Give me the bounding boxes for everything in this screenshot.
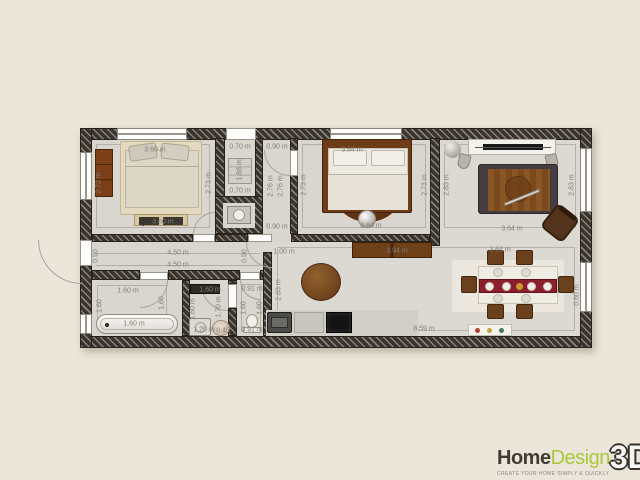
kitchen-module[interactable] xyxy=(294,312,324,333)
hallway-dimline2 xyxy=(96,265,260,266)
runner-plate-4 xyxy=(543,282,552,291)
bench-cushion-2 xyxy=(163,217,183,225)
lowboard-item-1 xyxy=(475,328,480,333)
wall-bottom xyxy=(80,336,592,348)
dining-plate-bottom-1 xyxy=(493,294,503,303)
wall-h1-c xyxy=(291,234,430,242)
washbasin-bowl-icon xyxy=(233,209,245,221)
wall-bed2-tvroom xyxy=(430,138,440,246)
bathtub[interactable] xyxy=(96,314,178,334)
toilet-bowl xyxy=(246,314,258,328)
logo-3d-text: 3D xyxy=(610,444,640,470)
window-bedroom1-top[interactable] xyxy=(117,128,187,140)
dining-chair-bottom-left[interactable] xyxy=(487,304,504,319)
bathtub-inner xyxy=(100,318,174,330)
door-wc[interactable] xyxy=(240,272,260,280)
runner-plate-2 xyxy=(502,282,511,291)
wall-hall-bottom-a xyxy=(92,270,140,280)
dining-chair-right[interactable] xyxy=(558,276,574,293)
dining-chair-left[interactable] xyxy=(461,276,477,293)
bed1-pillow-right xyxy=(160,143,190,162)
dining-plate-bottom-2 xyxy=(521,294,531,303)
round-table[interactable] xyxy=(301,263,341,301)
homedesign3d-logo: HomeDesign3D CREATE YOUR HOME SIMPLY & Q… xyxy=(497,444,637,478)
door-closet-top[interactable] xyxy=(226,128,256,140)
wall-h1-a xyxy=(92,234,193,242)
door-bathroom[interactable] xyxy=(140,272,168,280)
door-bedroom2[interactable] xyxy=(290,150,298,176)
door-bedroom1[interactable] xyxy=(193,234,215,242)
wall-h1-b xyxy=(215,234,248,242)
bedroom1-bed[interactable] xyxy=(120,141,202,215)
pool-table[interactable] xyxy=(478,164,558,214)
bedroom1-wardrobe[interactable] xyxy=(95,149,113,197)
dining-chair-top-right[interactable] xyxy=(516,250,533,265)
lowboard-item-2 xyxy=(487,328,492,333)
logo-home-text: Home xyxy=(497,447,551,470)
floor-plan: HomeDesign3D CREATE YOUR HOME SIMPLY & Q… xyxy=(0,0,640,480)
logo-design-text: Design xyxy=(551,447,610,470)
hallway-dimline xyxy=(96,253,260,254)
closet-shelves[interactable] xyxy=(228,158,252,184)
bathtub-drain xyxy=(105,323,109,327)
bedroom2-bed[interactable] xyxy=(322,139,412,213)
dining-runner xyxy=(479,279,557,293)
dining-chair-bottom-right[interactable] xyxy=(516,304,533,319)
runner-centerpiece xyxy=(516,283,523,290)
bed2-pillow-right xyxy=(371,150,405,166)
kitchen-sink-unit[interactable] xyxy=(267,312,292,333)
tv-console[interactable] xyxy=(468,139,556,155)
wall-hall-bottom-b xyxy=(168,270,240,280)
washing-machine-door xyxy=(195,322,206,333)
bedroom2-sphere-lamp[interactable] xyxy=(358,210,376,228)
bed2-pillow-left xyxy=(333,150,367,166)
door-entry-swing xyxy=(38,240,82,284)
dining-plate-top-2 xyxy=(521,268,531,277)
window-bathroom-left[interactable] xyxy=(80,314,92,334)
bed2-duvet xyxy=(328,174,408,210)
tv-stand-bar xyxy=(475,147,551,148)
window-bedroom1-left[interactable] xyxy=(80,152,92,200)
wall-laundry-wc-bottom xyxy=(228,308,237,336)
dining-chair-top-left[interactable] xyxy=(487,250,504,265)
laundry-basin[interactable] xyxy=(212,320,230,336)
runner-plate-3 xyxy=(527,282,536,291)
niche-washbasin[interactable] xyxy=(227,206,251,224)
kitchen-stove[interactable] xyxy=(326,312,352,333)
lowboard-item-3 xyxy=(499,328,504,333)
laundry-counter[interactable] xyxy=(190,284,220,294)
dining-table[interactable] xyxy=(478,266,558,304)
door-living[interactable] xyxy=(248,234,272,242)
washing-machine[interactable] xyxy=(189,318,211,336)
window-tvroom-right[interactable] xyxy=(580,148,592,212)
door-laundry[interactable] xyxy=(228,284,237,308)
toilet[interactable] xyxy=(243,314,261,334)
living-lowboard[interactable] xyxy=(468,324,512,336)
kitchen-sink-basin xyxy=(271,317,288,328)
toilet-tank xyxy=(243,327,261,333)
window-dining-right[interactable] xyxy=(580,262,592,312)
dining-plate-top-1 xyxy=(493,268,503,277)
sideboard[interactable] xyxy=(352,242,432,258)
runner-plate-1 xyxy=(485,282,494,291)
bed1-duvet-fold xyxy=(125,166,199,167)
